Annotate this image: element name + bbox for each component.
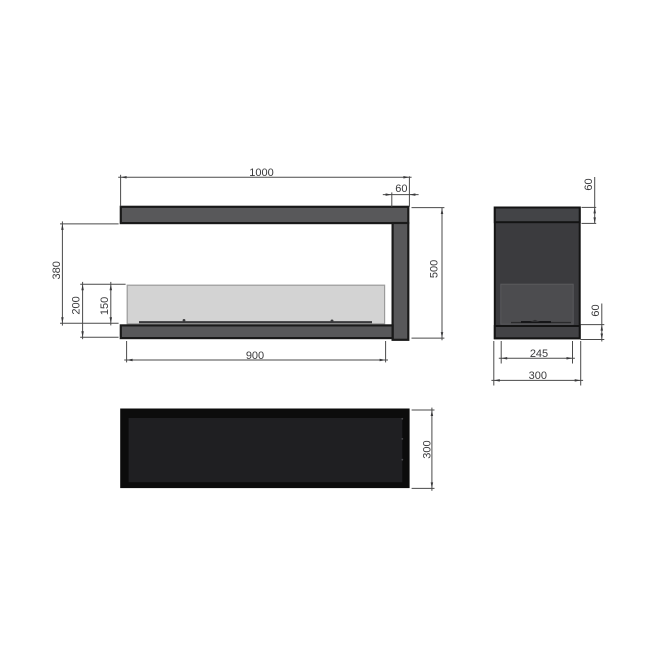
svg-text:300: 300 [421,440,433,458]
svg-text:380: 380 [51,261,63,279]
svg-text:1000: 1000 [249,167,273,179]
svg-text:60: 60 [590,304,602,316]
svg-text:300: 300 [529,370,547,382]
svg-text:60: 60 [395,183,407,195]
svg-text:150: 150 [99,297,111,315]
svg-text:245: 245 [530,348,548,360]
svg-text:60: 60 [583,178,595,190]
svg-text:200: 200 [70,296,82,314]
svg-text:900: 900 [246,350,264,362]
svg-text:500: 500 [428,260,440,278]
